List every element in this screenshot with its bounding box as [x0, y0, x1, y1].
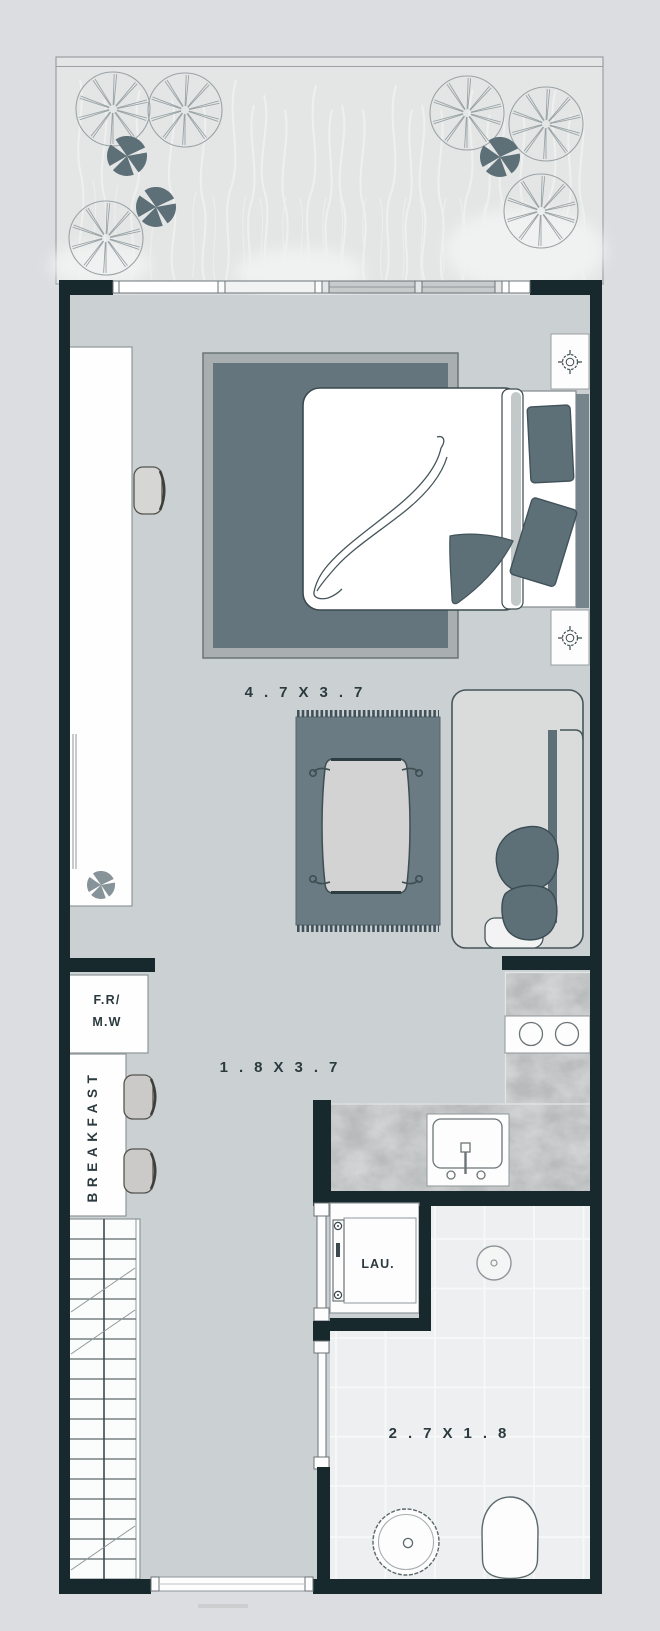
svg-text:M.W: M.W: [92, 1015, 121, 1029]
svg-text:2.7X1.8: 2.7X1.8: [389, 1425, 518, 1442]
svg-text:BREAKFAST: BREAKFAST: [85, 1070, 100, 1203]
svg-text:F.R/: F.R/: [93, 993, 120, 1007]
svg-text:1.8X3.7: 1.8X3.7: [220, 1059, 349, 1076]
svg-text:LAU.: LAU.: [361, 1257, 394, 1271]
svg-text:4.7X3.7: 4.7X3.7: [245, 684, 374, 701]
